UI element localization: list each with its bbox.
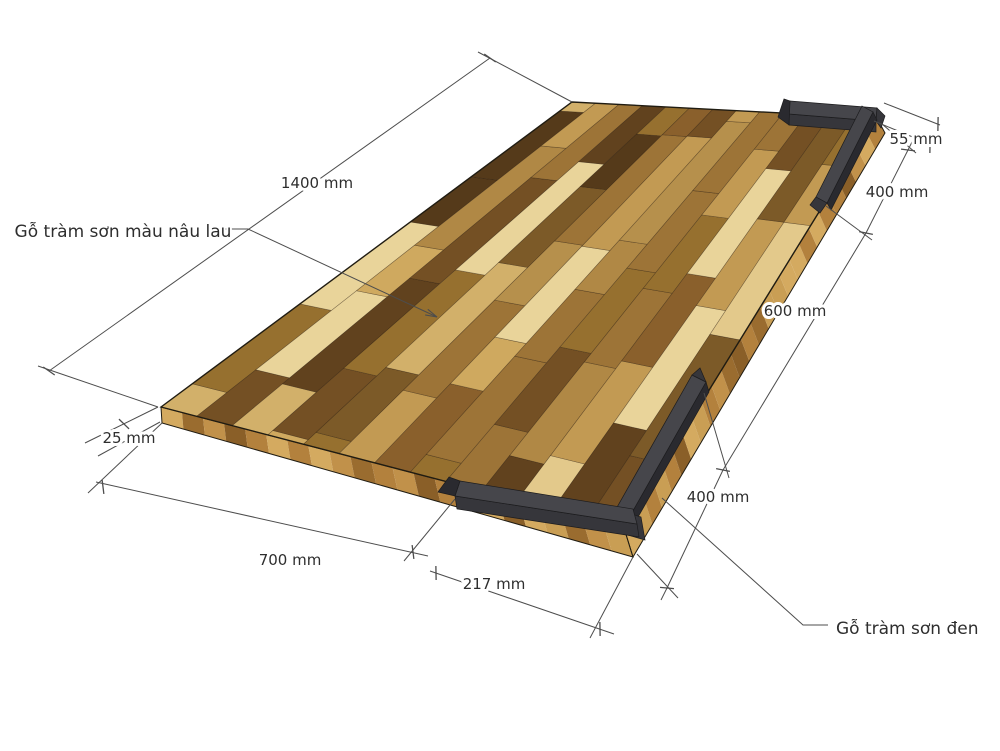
ext-line-55 xyxy=(884,103,940,125)
dim-chain xyxy=(661,588,667,600)
ext-line xyxy=(590,557,633,638)
dimension-tick xyxy=(119,419,129,429)
leader-line-rail-material xyxy=(662,498,828,625)
dim-label-rail-bottom-length: 400 mm xyxy=(687,488,750,506)
dim-label-rail-corner-arm: 217 mm xyxy=(463,575,526,593)
dim-label-rail-gap: 600 mm xyxy=(764,302,827,320)
technical-drawing-canvas: 1400 mm 55 mm 400 mm 600 mm 400 mm 25 mm… xyxy=(0,0,1000,751)
dimension-tick xyxy=(660,587,674,588)
tabletop-dimension-drawing: 1400 mm 55 mm 400 mm 600 mm 400 mm 25 mm… xyxy=(0,0,1000,751)
dimension-tick xyxy=(102,480,104,494)
ext-line xyxy=(826,206,872,240)
material-label-top-panel: Gỗ tràm sơn màu nâu lau xyxy=(15,221,232,242)
ext-line xyxy=(38,366,158,407)
dim-label-panel-width: 700 mm xyxy=(259,551,322,569)
dim-label-rail-width: 55 mm xyxy=(889,130,942,148)
ext-line xyxy=(404,499,455,561)
ext-line xyxy=(637,554,678,598)
dim-label-panel-thickness: 25 mm xyxy=(102,429,155,447)
material-label-black-rail: Gỗ tràm sơn đen xyxy=(836,618,978,639)
dim-line-700 xyxy=(96,482,428,556)
dimension-tick xyxy=(901,149,915,151)
dimension-tick xyxy=(412,545,414,559)
dim-label-panel-length: 1400 mm xyxy=(281,174,353,192)
dim-label-rail-top-length: 400 mm xyxy=(866,183,929,201)
